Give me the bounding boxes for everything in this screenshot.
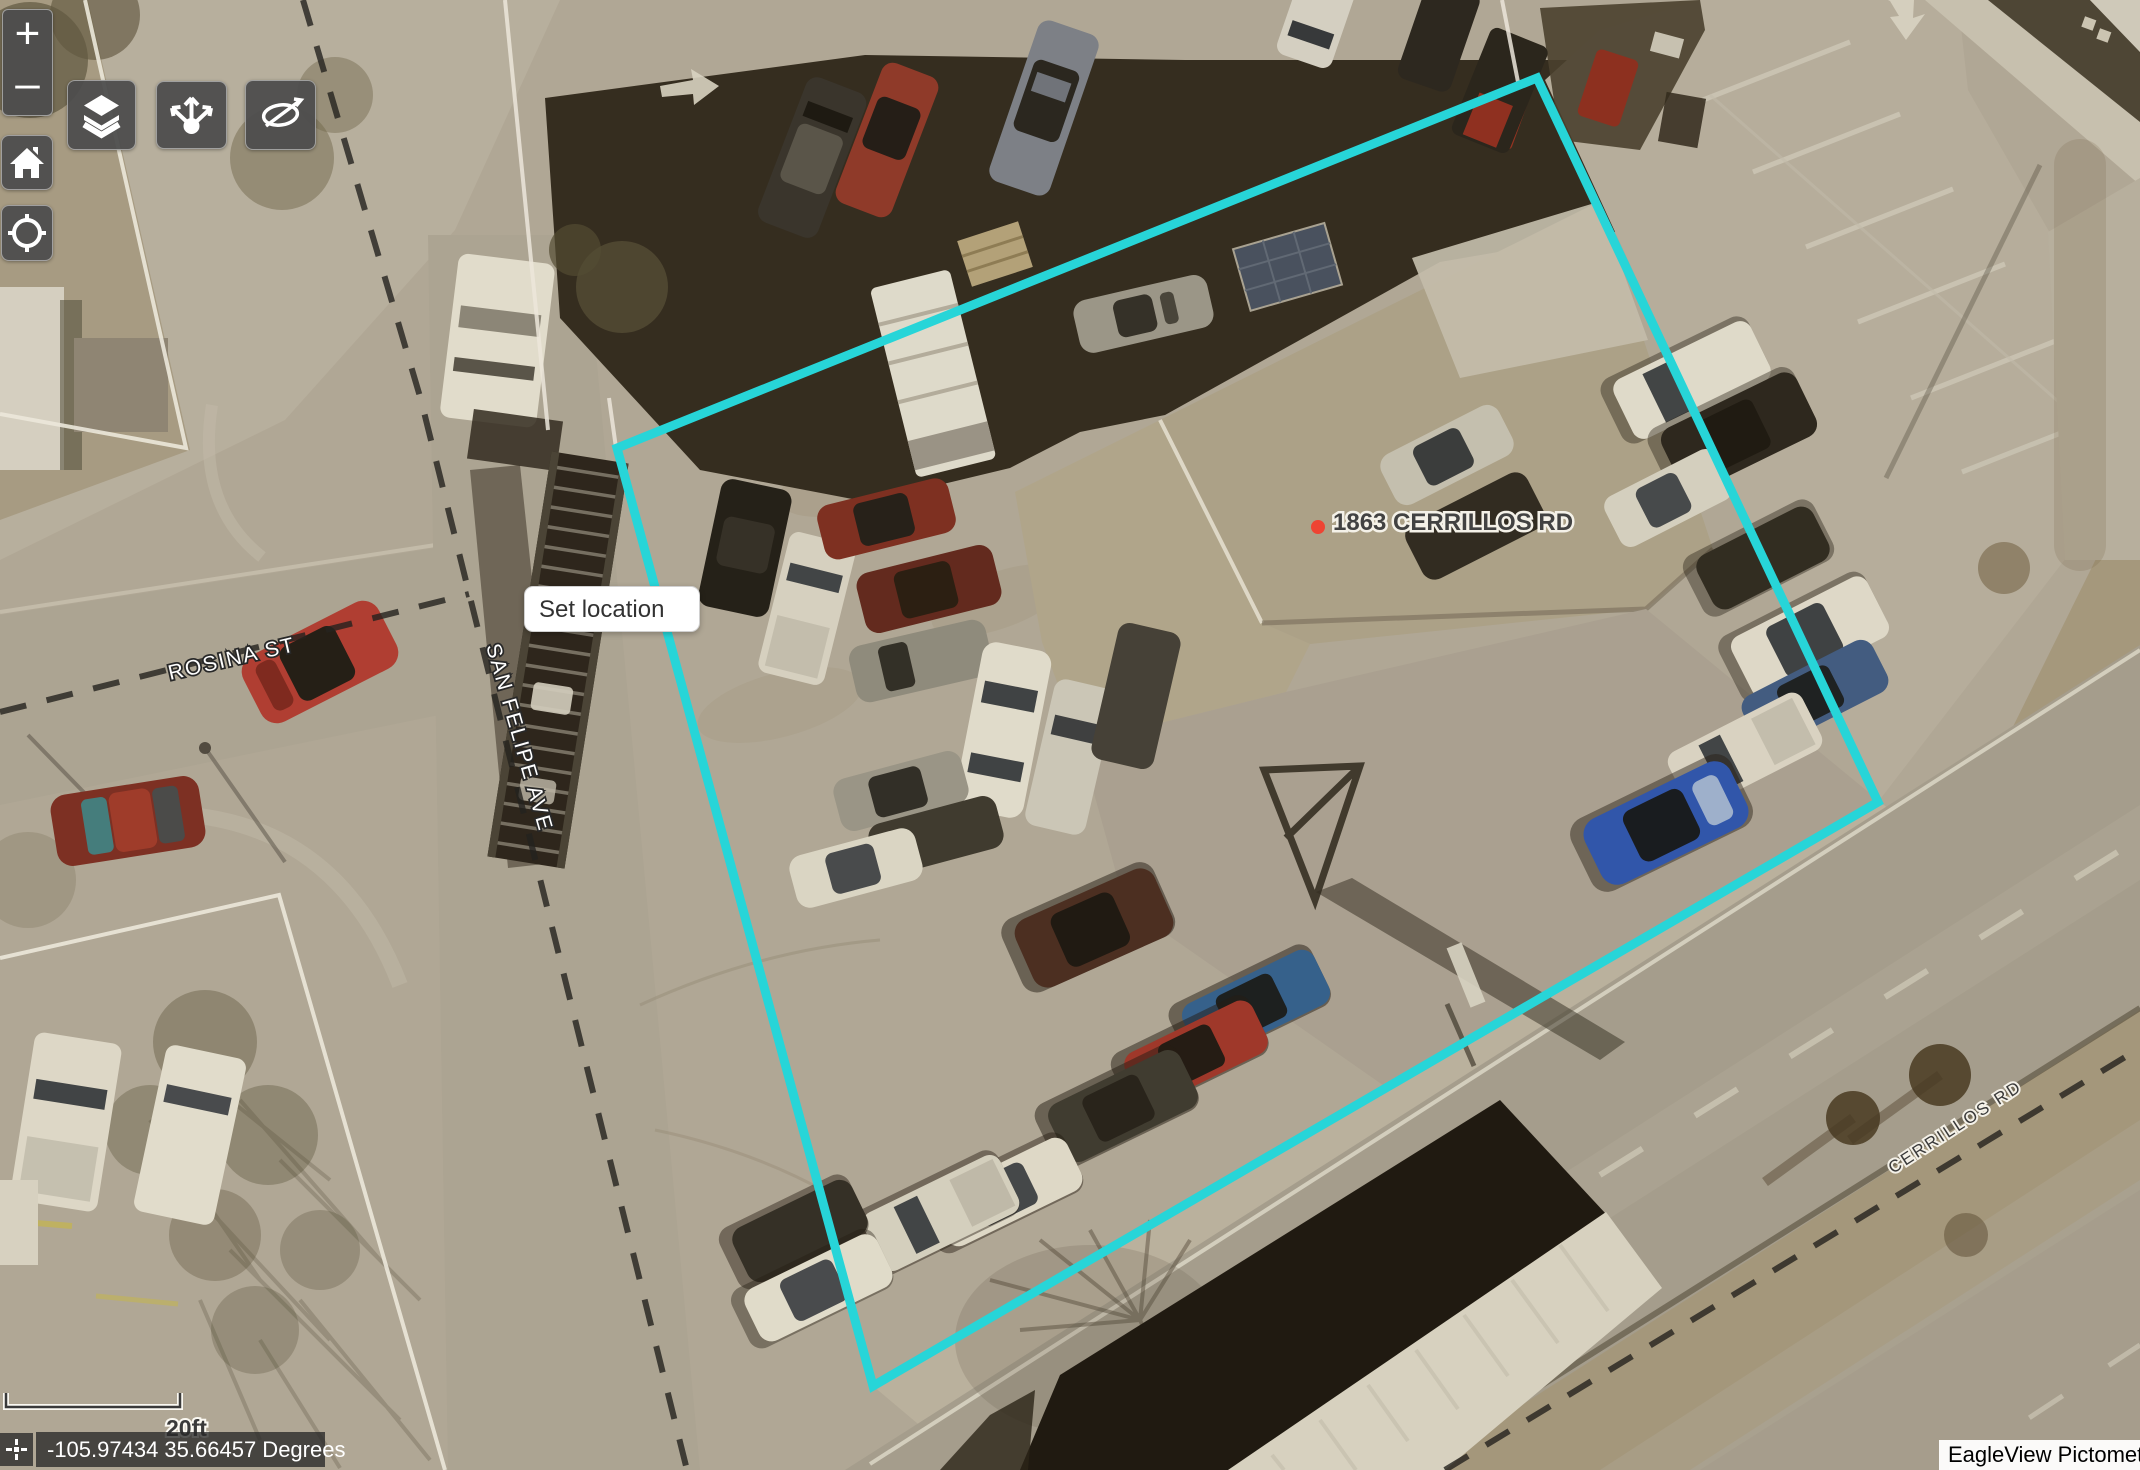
svg-text:1863 CERRILLOS RD: 1863 CERRILLOS RD [1333,509,1573,536]
